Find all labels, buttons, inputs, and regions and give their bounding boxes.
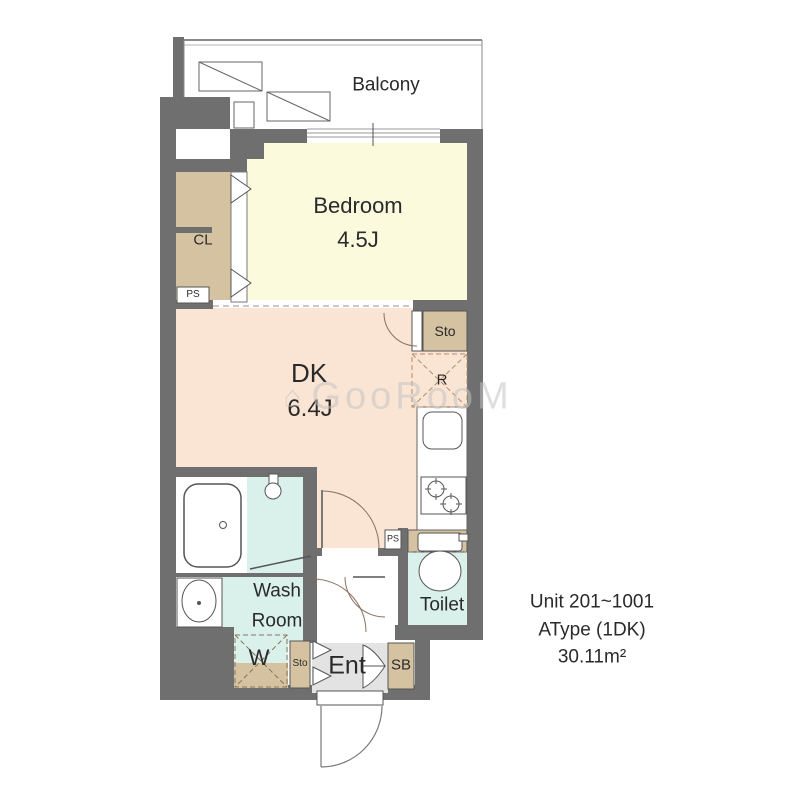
- wall-topleft-block: [160, 97, 230, 129]
- entrance-door-swing-arc: [321, 706, 382, 767]
- washer-label: W: [249, 647, 270, 669]
- watermark-text: GooRooM: [311, 376, 512, 419]
- shower-head-icon: [265, 483, 281, 499]
- dk-door-opening: [322, 548, 378, 556]
- wall-bedroom-step: [230, 143, 264, 159]
- sto-lower-label: Sto: [292, 659, 307, 669]
- toilet-tank-knob: [459, 534, 468, 541]
- sto-door-leaf: [412, 311, 422, 351]
- toilet-tank: [418, 533, 462, 551]
- wall-dkdoor-left: [317, 548, 322, 556]
- shower-mount: [269, 474, 278, 484]
- balcony-small-box: [234, 102, 254, 128]
- bathtub: [184, 484, 241, 567]
- bedroom-label: Bedroom: [313, 195, 402, 217]
- wall-bath-top: [160, 467, 317, 477]
- washroom-label-line2: Room: [252, 612, 303, 631]
- entrance-door-frame: [317, 691, 383, 705]
- unit-info-block: Unit 201~1001 AType (1DK) 30.11m²: [530, 589, 654, 672]
- unit-info-type: AType (1DK): [530, 616, 654, 644]
- toilet-bowl: [419, 551, 461, 591]
- entrance-label: Ent: [328, 654, 366, 679]
- sb-label: SB: [391, 658, 411, 673]
- watermark: ⌂ GooRooM: [283, 376, 512, 419]
- ps-lower-label: PS: [387, 535, 399, 544]
- wall-balcony-stub: [173, 37, 184, 97]
- vanity-drain: [197, 601, 201, 605]
- wall-bath-wash-divider: [176, 573, 303, 577]
- unit-info-area: 30.11m²: [530, 644, 654, 672]
- wall-bath-hall-stub: [303, 467, 317, 643]
- balcony-label: Balcony: [352, 76, 420, 95]
- bedroom-floor: [233, 143, 467, 302]
- unit-info-range: Unit 201~1001: [530, 589, 654, 617]
- hallway-floor: [317, 556, 398, 643]
- ps-upper-label: PS: [186, 290, 199, 300]
- floorplan-canvas: Balcony Bedroom 4.5J CL PS DK 6.4J Sto R…: [0, 0, 799, 800]
- wall-toilet-bottom: [395, 625, 483, 640]
- dk-floor-mid: [303, 308, 417, 548]
- bedroom-size: 4.5J: [337, 229, 379, 251]
- wall-cl-top: [160, 159, 247, 172]
- bathtub-drain: [220, 522, 227, 529]
- wall-window-left: [230, 129, 307, 143]
- stove: [421, 477, 466, 514]
- cl-label: CL: [193, 233, 212, 248]
- sto-upper-label: Sto: [434, 324, 455, 338]
- wall-boundary-right: [413, 300, 467, 311]
- toilet-label: Toilet: [420, 596, 464, 615]
- wall-left-outer: [160, 129, 176, 697]
- washroom-label-line1: Wash: [253, 582, 301, 601]
- watermark-house-icon: ⌂: [283, 380, 305, 414]
